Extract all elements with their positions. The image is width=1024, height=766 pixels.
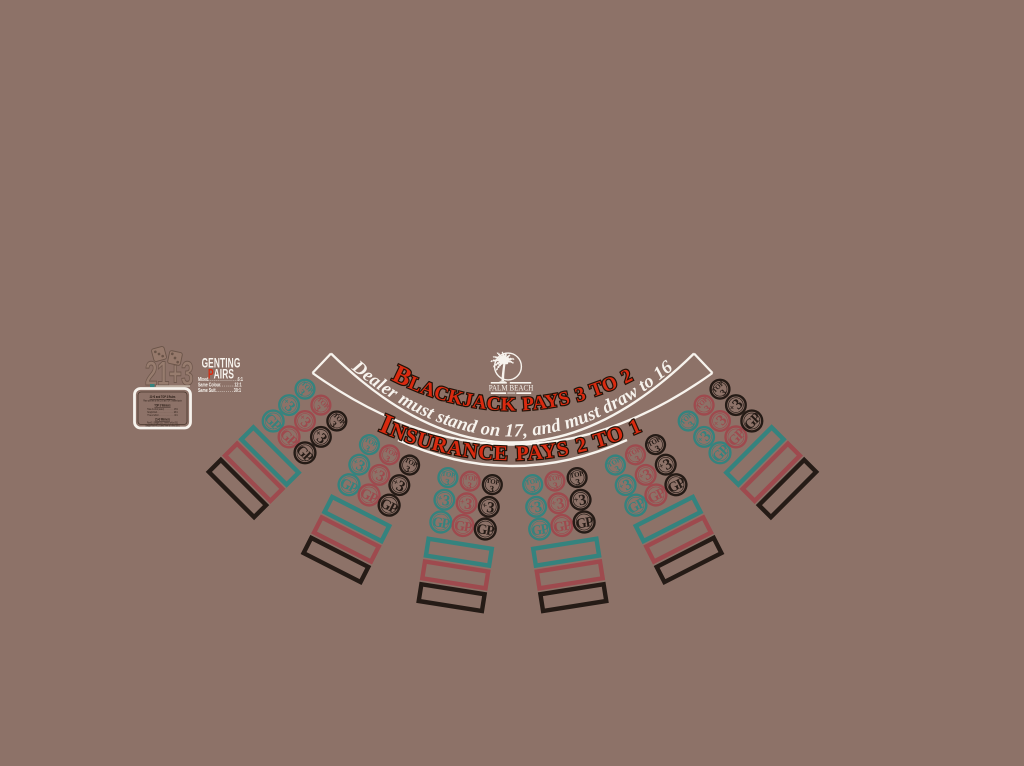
- svg-text:Same Suit. . . . . . . . . 30:: Same Suit. . . . . . . . . 30:1: [198, 387, 241, 394]
- svg-text:PALM BEACH: PALM BEACH: [489, 383, 534, 393]
- svg-text:Straight Flush 40:1 Suited T: Straight Flush 40:1 Suited Three of a Ki…: [145, 424, 180, 428]
- svg-text:21+3 and TOP 3 Rules: 21+3 and TOP 3 Rules: [150, 394, 176, 399]
- svg-text:TOP 3 Winners: TOP 3 Winners: [154, 403, 170, 408]
- svg-text:Three of a Kind (suited) . . .: Three of a Kind (suited) . . . . . . . .…: [147, 407, 179, 411]
- svg-text:Straight Flush . . . . . . . .: Straight Flush . . . . . . . . . . . . .…: [147, 410, 178, 414]
- svg-text:21+3 Winners: 21+3 Winners: [155, 417, 170, 422]
